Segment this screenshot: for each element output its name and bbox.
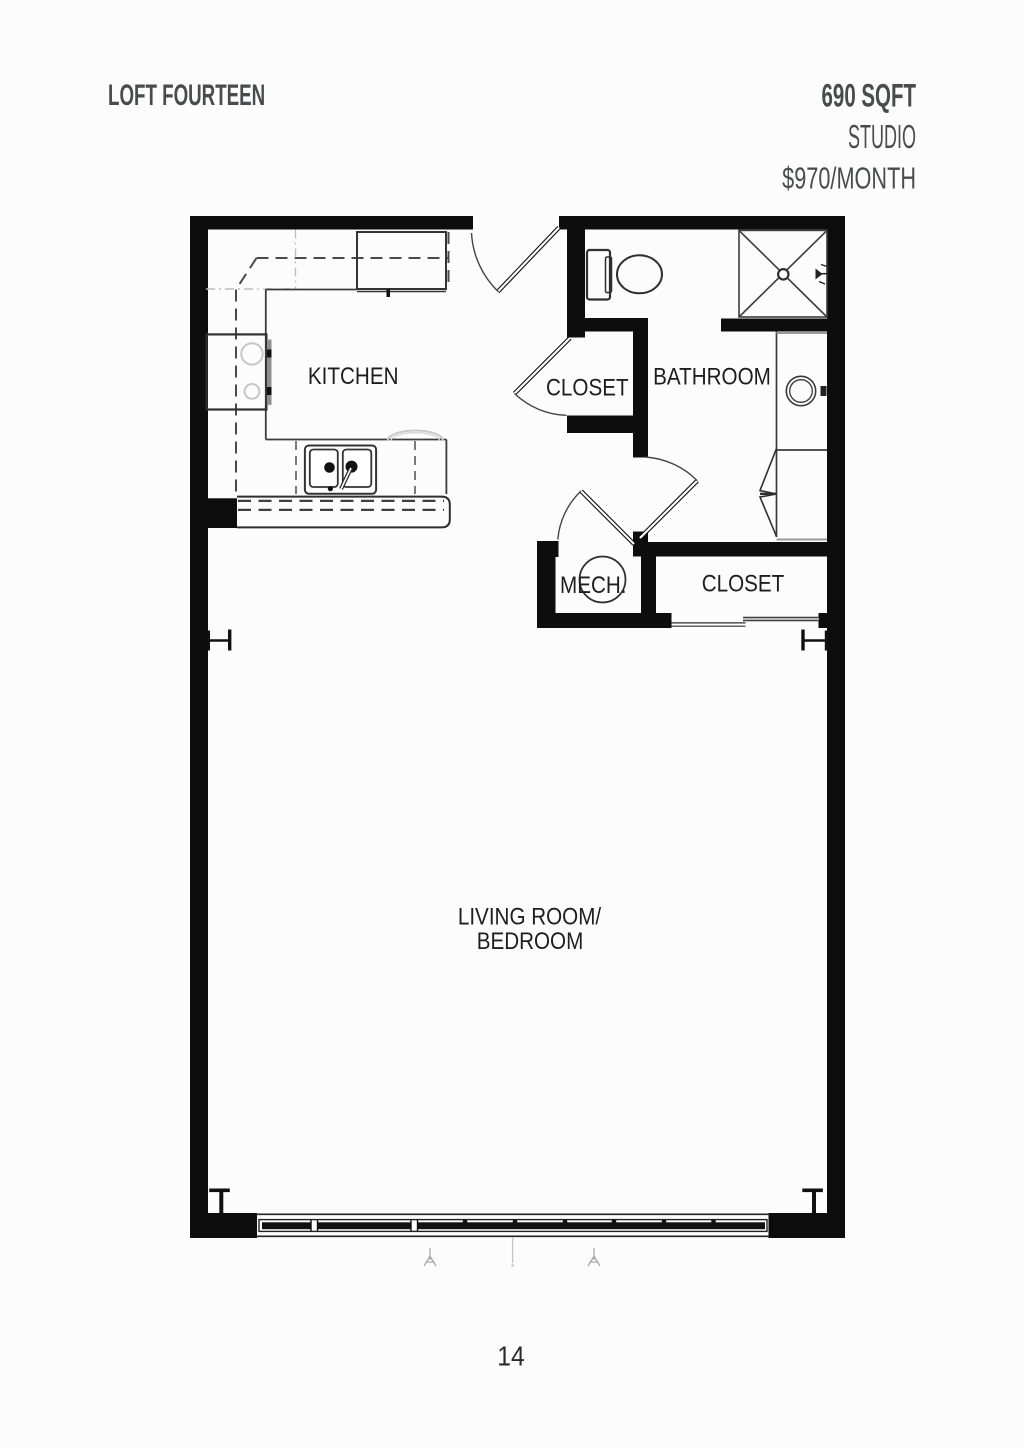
svg-text:$970/MONTH: $970/MONTH bbox=[782, 160, 916, 195]
svg-text:LIVING ROOM/: LIVING ROOM/ bbox=[458, 903, 602, 930]
svg-text:14: 14 bbox=[497, 1340, 524, 1372]
svg-text:KITCHEN: KITCHEN bbox=[308, 362, 399, 389]
svg-text:BEDROOM: BEDROOM bbox=[477, 928, 584, 955]
svg-text:CLOSET: CLOSET bbox=[546, 374, 629, 401]
svg-text:BATHROOM: BATHROOM bbox=[653, 363, 771, 390]
svg-text:690 SQFT: 690 SQFT bbox=[822, 78, 917, 114]
svg-text:CLOSET: CLOSET bbox=[702, 570, 785, 597]
svg-text:STUDIO: STUDIO bbox=[848, 118, 916, 155]
svg-text:LOFT FOURTEEN: LOFT FOURTEEN bbox=[108, 79, 265, 113]
svg-text:MECH.: MECH. bbox=[560, 571, 626, 598]
